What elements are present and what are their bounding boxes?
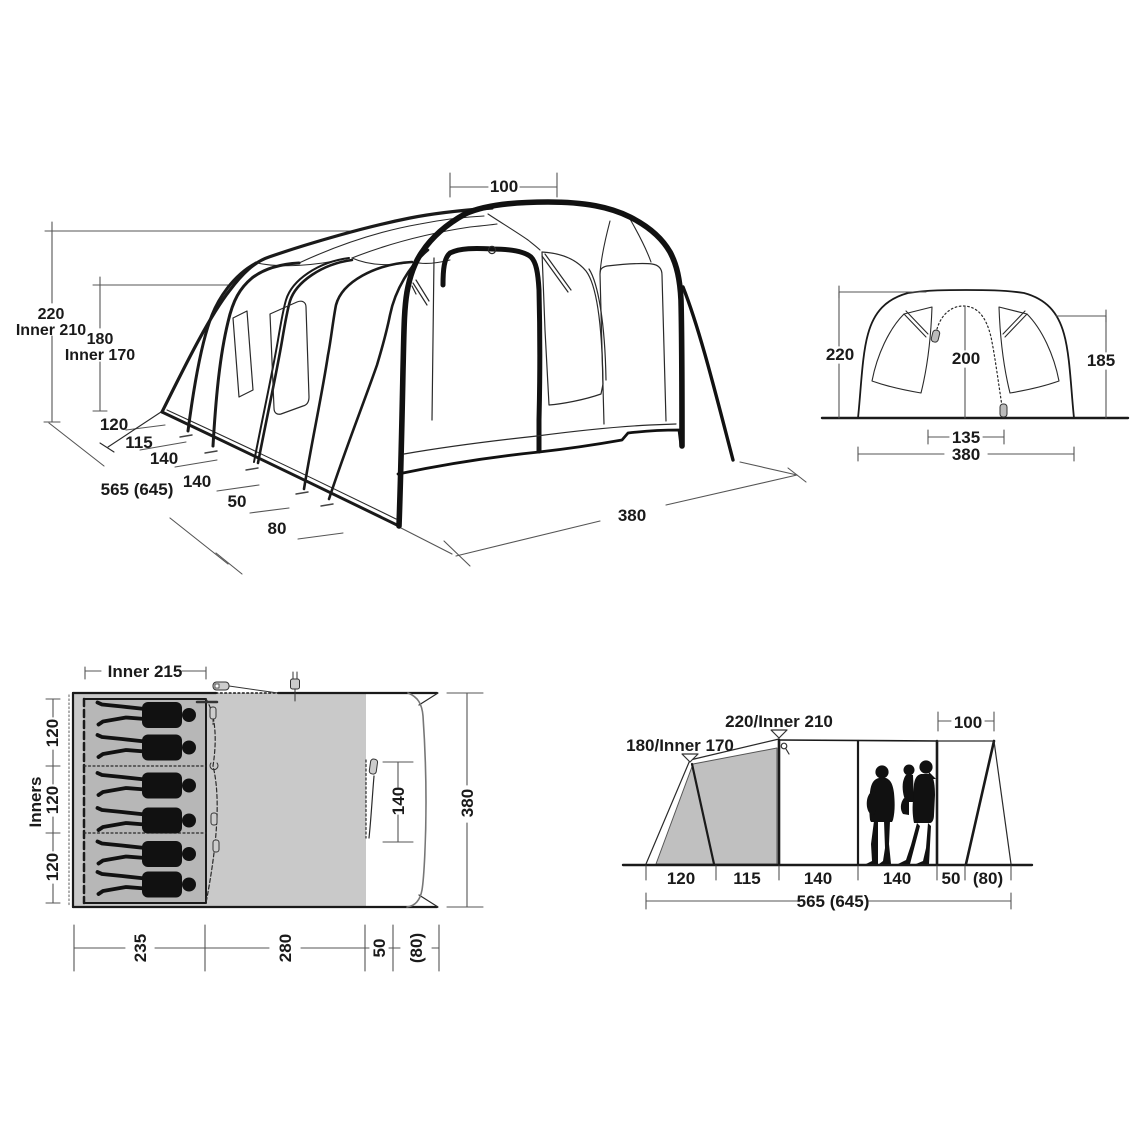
svg-text:50: 50	[370, 939, 389, 958]
svg-text:140: 140	[804, 869, 832, 888]
svg-text:Inner 215: Inner 215	[108, 662, 183, 681]
svg-text:(80): (80)	[407, 933, 426, 963]
svg-text:380: 380	[952, 445, 980, 464]
svg-text:Inner 210: Inner 210	[16, 322, 86, 339]
svg-text:220: 220	[826, 345, 854, 364]
svg-text:380: 380	[618, 506, 646, 525]
svg-text:120: 120	[43, 786, 62, 814]
svg-text:280: 280	[276, 934, 295, 962]
svg-text:Inner 170: Inner 170	[65, 347, 135, 364]
svg-text:50: 50	[942, 869, 961, 888]
svg-text:185: 185	[1087, 351, 1115, 370]
svg-text:140: 140	[883, 869, 911, 888]
svg-text:140: 140	[389, 787, 408, 815]
svg-text:380: 380	[458, 789, 477, 817]
svg-text:220/Inner 210: 220/Inner 210	[725, 712, 833, 731]
svg-text:220: 220	[38, 306, 65, 323]
svg-text:120: 120	[43, 853, 62, 881]
svg-text:(80): (80)	[973, 869, 1003, 888]
svg-text:115: 115	[125, 433, 152, 452]
svg-text:115: 115	[733, 869, 760, 888]
svg-text:50: 50	[228, 492, 247, 511]
svg-text:140: 140	[183, 472, 211, 491]
svg-text:Inners: Inners	[26, 776, 45, 827]
svg-text:80: 80	[268, 519, 287, 538]
svg-text:100: 100	[954, 713, 982, 732]
svg-text:565 (645): 565 (645)	[101, 480, 174, 499]
svg-text:235: 235	[131, 934, 150, 962]
svg-text:180: 180	[87, 331, 114, 348]
svg-text:120: 120	[100, 415, 128, 434]
svg-text:565 (645): 565 (645)	[797, 892, 870, 911]
svg-text:100: 100	[490, 177, 518, 196]
svg-text:180/Inner 170: 180/Inner 170	[626, 736, 734, 755]
svg-text:140: 140	[150, 449, 178, 468]
svg-text:120: 120	[667, 869, 695, 888]
svg-text:200: 200	[952, 349, 980, 368]
svg-text:120: 120	[43, 719, 62, 747]
